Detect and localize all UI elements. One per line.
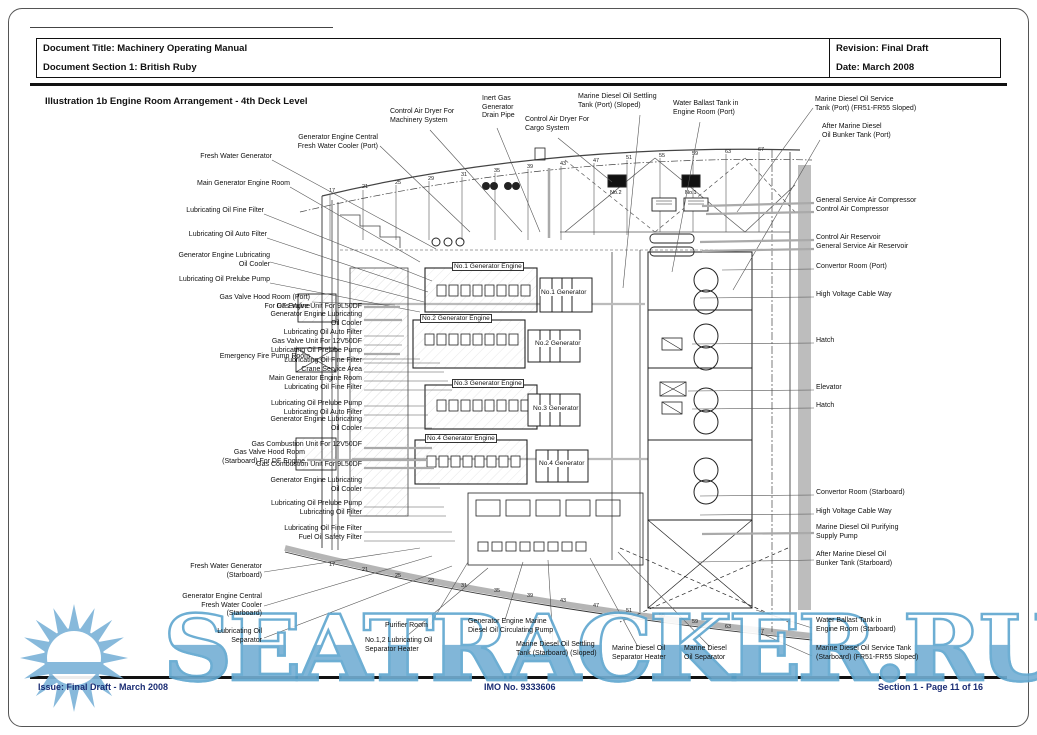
footer-imo: IMO No. 9333606: [484, 682, 556, 692]
label-no1-generator: No.1 Generator: [540, 289, 587, 296]
svg-text:59: 59: [692, 619, 698, 625]
label-no2-generator: No.2 Generator: [534, 340, 581, 347]
callout-fresh-water-generator-stbd: Fresh Water Generator (Starboard): [112, 563, 262, 580]
svg-text:51: 51: [626, 155, 632, 161]
upper-lattice: [560, 158, 795, 232]
callout-lo-fine-filter-4: Lubricating Oil Fine Filter: [212, 525, 362, 534]
callout-elevator: Elevator: [816, 384, 842, 393]
label-dryer-no1: No.1: [685, 190, 697, 196]
svg-text:35: 35: [494, 588, 500, 594]
label-no4-generator-engine: No.4 Generator Engine: [425, 434, 497, 443]
callout-gs-air-reservoir: General Service Air Reservoir: [816, 243, 908, 252]
callout-lo-separator: Lubricating Oil Separator: [112, 628, 262, 645]
callout-ge-lo-cooler-2: Generator Engine Lubricating Oil Cooler: [212, 311, 362, 328]
callout-hatch-1: Hatch: [816, 337, 834, 346]
callout-purifier-room: Purifier Room: [385, 622, 428, 631]
callout-gas-combustion-unit-9l50df: Gas Combustion Unit For 9L50DF: [212, 461, 362, 470]
callout-wb-tank-stbd: Water Ballast Tank in Engine Room (Starb…: [816, 617, 896, 634]
callout-ge-central-fw-cooler-stbd: Generator Engine Central Fresh Water Coo…: [112, 593, 262, 619]
label-no1-generator-engine: No.1 Generator Engine: [452, 262, 524, 271]
label-no3-generator-engine: No.3 Generator Engine: [452, 379, 524, 388]
svg-text:35: 35: [494, 168, 500, 174]
callout-ge-mdo-circ-pump: Generator Engine Marine Diesel Oil Circu…: [468, 618, 553, 635]
callout-lo-auto-filter: Lubricating Oil Auto Filter: [117, 231, 267, 240]
label-no3-generator: No.3 Generator: [532, 405, 579, 412]
callout-ge-lo-cooler: Generator Engine Lubricating Oil Cooler: [120, 252, 270, 269]
callout-ge-lo-cooler-4: Generator Engine Lubricating Oil Cooler: [212, 477, 362, 494]
callout-gas-valve-unit-12v50df: Gas Valve Unit For 12V50DF: [212, 338, 362, 347]
purifier-room-units: [468, 493, 643, 565]
svg-text:43: 43: [560, 161, 566, 167]
callout-lo-separator-heater: No.1,2 Lubricating Oil Separator Heater: [365, 637, 432, 654]
svg-text:43: 43: [560, 598, 566, 604]
callout-after-mdo-bunker-tank-port: After Marine Diesel Oil Bunker Tank (Por…: [822, 123, 891, 140]
generator-engines: [413, 268, 537, 484]
svg-text:51: 51: [626, 608, 632, 614]
callout-after-mdo-bunker-tank-stbd: After Marine Diesel Oil Bunker Tank (Sta…: [816, 551, 892, 568]
label-no2-generator-engine: No.2 Generator Engine: [420, 314, 492, 323]
callout-hatch-2: Hatch: [816, 402, 834, 411]
svg-text:39: 39: [527, 593, 533, 599]
svg-text:29: 29: [428, 176, 434, 182]
callout-convertor-room-stbd: Convertor Room (Starboard): [816, 489, 905, 498]
svg-text:17: 17: [329, 562, 335, 568]
callout-lo-prelube-pump: Lubricating Oil Prelube Pump: [120, 276, 270, 285]
callout-control-air-reservoir: Control Air Reservoir: [816, 234, 881, 243]
callout-mdo-separator-heater: Marine Diesel Oil Separator Heater: [612, 645, 666, 662]
svg-text:31: 31: [461, 172, 467, 178]
svg-text:21: 21: [362, 567, 368, 573]
svg-text:47: 47: [593, 158, 599, 164]
svg-text:21: 21: [362, 184, 368, 190]
starboard-column: [648, 252, 752, 608]
callout-lo-fine-filter-3: Lubricating Oil Fine Filter: [212, 384, 362, 393]
machinery: [296, 148, 788, 622]
svg-text:63: 63: [725, 624, 731, 630]
callout-fresh-water-generator: Fresh Water Generator: [122, 153, 272, 162]
callout-air-dryer-cargo: Control Air Dryer For Cargo System: [525, 116, 589, 133]
footer-issue: Issue: Final Draft - March 2008: [38, 682, 168, 692]
svg-text:59: 59: [692, 151, 698, 157]
callout-inert-gas-drain-pipe: Inert Gas Generator Drain Pipe: [482, 95, 515, 121]
label-dryer-no2: No.2: [610, 190, 622, 196]
svg-text:29: 29: [428, 578, 434, 584]
callout-mdo-settling-tank-port: Marine Diesel Oil Settling Tank (Port) (…: [578, 93, 657, 110]
svg-text:25: 25: [395, 573, 401, 579]
svg-text:63: 63: [725, 149, 731, 155]
callout-mdo-separator: Marine Diesel Oil Separator: [684, 645, 727, 662]
callout-lo-auto-filter-2: Lubricating Oil Auto Filter: [212, 329, 362, 338]
callout-air-dryer-machinery: Control Air Dryer For Machinery System: [390, 108, 454, 125]
footer-section-page: Section 1 - Page 11 of 16: [878, 682, 983, 692]
callout-main-ge-room: Main Generator Engine Room: [140, 180, 290, 189]
svg-text:47: 47: [593, 603, 599, 609]
svg-text:67: 67: [758, 147, 764, 153]
callout-gs-air-compressor: General Service Air Compressor: [816, 197, 916, 206]
callout-ge-central-fw-cooler-port: Generator Engine Central Fresh Water Coo…: [228, 134, 378, 151]
callout-mdo-service-tank-stbd: Marine Diesel Oil Service Tank (Starboar…: [816, 645, 918, 662]
callout-mdo-settling-tank-stbd: Marine Diesel Oil Settling Tank (Starboa…: [516, 641, 597, 658]
callout-lo-prelube-pump-4: Lubricating Oil Prelube Pump: [212, 500, 362, 509]
callout-lo-prelube-pump-3: Lubricating Oil Prelube Pump: [212, 400, 362, 409]
svg-text:39: 39: [527, 164, 533, 170]
callout-hv-cable-way-2: High Voltage Cable Way: [816, 508, 892, 517]
svg-text:55: 55: [659, 613, 665, 619]
callout-lo-fine-filter: Lubricating Oil Fine Filter: [114, 207, 264, 216]
callout-convertor-room-port: Convertor Room (Port): [816, 263, 887, 272]
callout-lo-fine-filter-2: Lubricating Oil Fine Filter: [212, 357, 362, 366]
callout-lo-filter: Lubricating Oil Filter: [212, 509, 362, 518]
svg-text:25: 25: [395, 180, 401, 186]
callout-crane-service-area: Crane Service Area: [212, 366, 362, 375]
callout-ge-lo-cooler-3: Generator Engine Lubricating Oil Cooler: [212, 416, 362, 433]
callout-mdo-purifying-supply-pump: Marine Diesel Oil Purifying Supply Pump: [816, 524, 898, 541]
callout-fo-safety-filter: Fuel Oil Safety Filter: [212, 534, 362, 543]
callout-control-air-compressor: Control Air Compressor: [816, 206, 889, 215]
label-no4-generator: No.4 Generator: [538, 460, 585, 467]
callout-hv-cable-way: High Voltage Cable Way: [816, 291, 892, 300]
svg-text:17: 17: [329, 188, 335, 194]
callout-mdo-service-tank-port: Marine Diesel Oil Service Tank (Port) (F…: [815, 96, 916, 113]
callout-wb-tank-port: Water Ballast Tank in Engine Room (Port): [673, 100, 738, 117]
callout-main-ge-room-2: Main Generator Engine Room: [212, 375, 362, 384]
sun-logo: [20, 604, 128, 712]
generators: [528, 278, 592, 482]
svg-text:55: 55: [659, 153, 665, 159]
